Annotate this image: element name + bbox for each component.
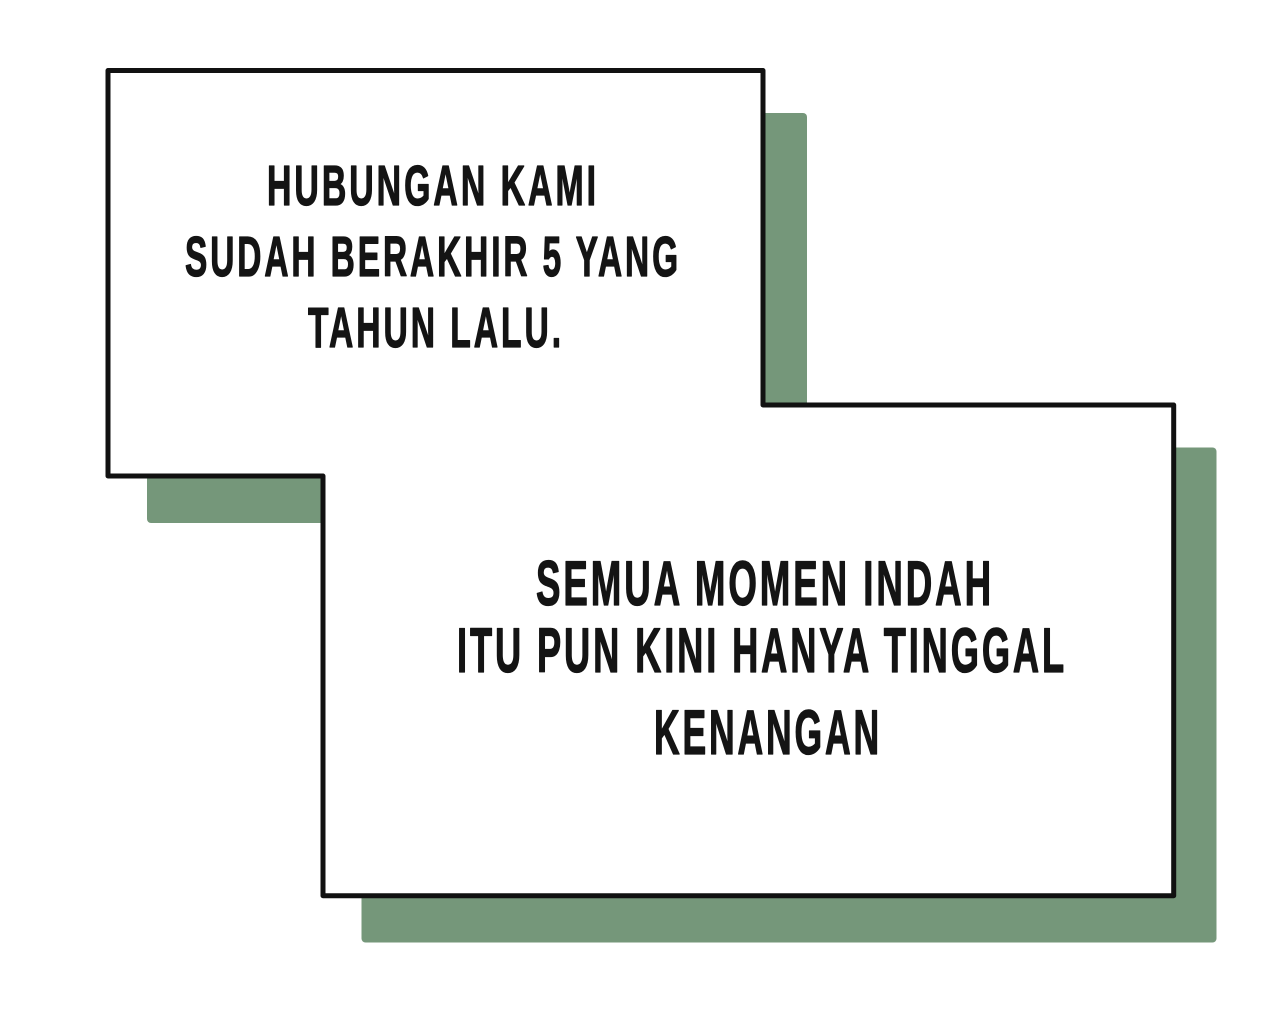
svg-text:TAHUN LALU.: TAHUN LALU. (308, 296, 564, 360)
svg-text:HUBUNGAN KAMI: HUBUNGAN KAMI (267, 154, 599, 218)
svg-text:SEMUA MOMEN INDAH: SEMUA MOMEN INDAH (536, 549, 994, 619)
svg-text:SUDAH BERAKHIR 5 YANG: SUDAH BERAKHIR 5 YANG (185, 225, 681, 289)
svg-text:ITU PUN KINI HANYA TINGGAL: ITU PUN KINI HANYA TINGGAL (457, 616, 1067, 686)
svg-text:KENANGAN: KENANGAN (654, 698, 882, 768)
